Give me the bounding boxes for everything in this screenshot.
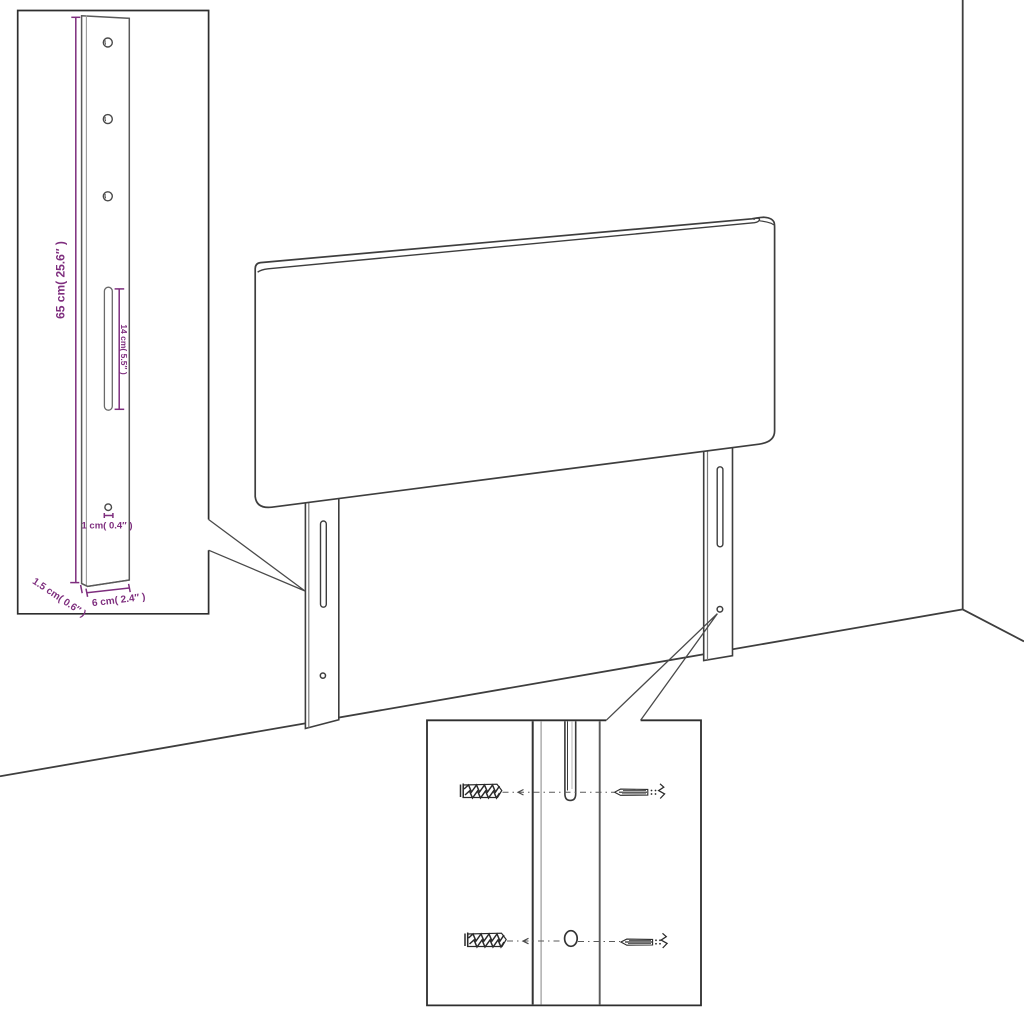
svg-text:65 cm( 25.6″ ): 65 cm( 25.6″ ) bbox=[54, 241, 68, 319]
svg-text:1 cm( 0.4″ ): 1 cm( 0.4″ ) bbox=[81, 521, 132, 532]
svg-text:14 cm( 5.5″ ): 14 cm( 5.5″ ) bbox=[119, 324, 129, 375]
